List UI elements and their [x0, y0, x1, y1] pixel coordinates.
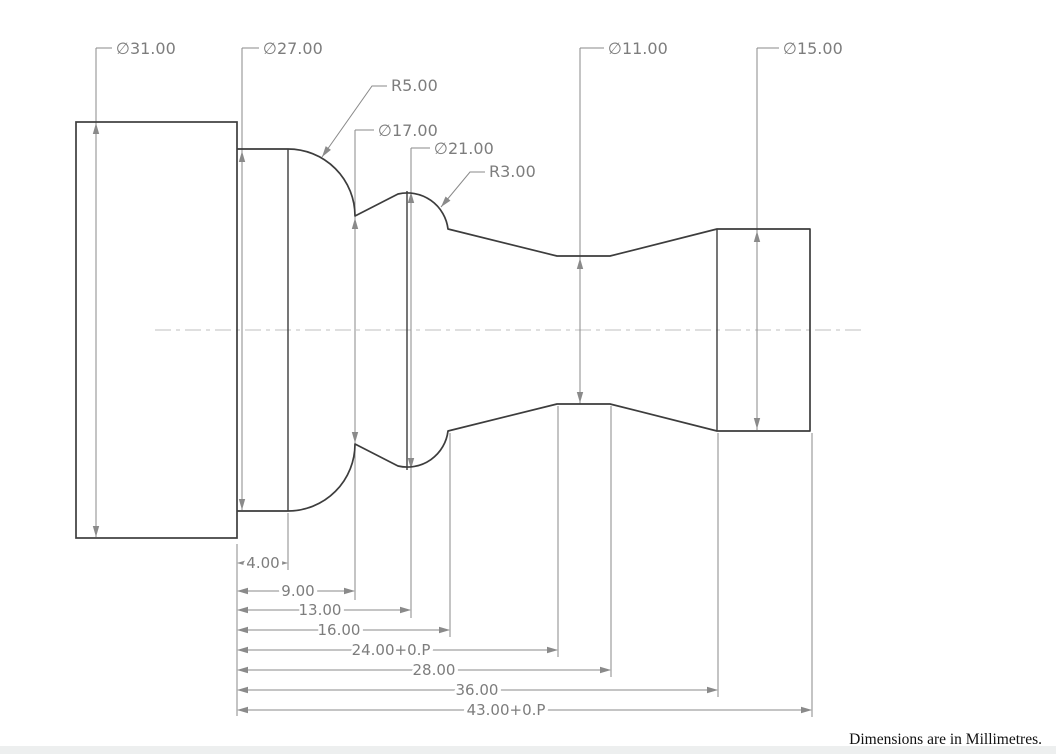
- length-arrow-right: [707, 687, 718, 693]
- diameter-arrow-up: [754, 231, 760, 242]
- diameter-label: ∅15.00: [783, 39, 843, 58]
- diameter-arrow-down: [352, 432, 358, 443]
- length-label: 36.00: [456, 681, 499, 699]
- length-label: 28.00: [413, 661, 456, 679]
- diameter-arrow-up: [352, 218, 358, 229]
- diameter-label: ∅31.00: [116, 39, 176, 58]
- length-arrow-right: [600, 667, 611, 673]
- length-arrow-right: [344, 588, 355, 594]
- radius-label: R3.00: [489, 162, 536, 181]
- diameter-arrow-up: [93, 123, 99, 134]
- diameter-label: ∅11.00: [608, 39, 668, 58]
- drawing-page: ∅31.00∅27.00∅17.00∅21.00∅11.00∅15.00R5.0…: [0, 0, 1056, 754]
- length-arrow-left: [237, 667, 248, 673]
- length-arrow-left: [237, 707, 248, 713]
- diameter-arrow-up: [577, 258, 583, 269]
- length-arrow-left: [237, 687, 248, 693]
- bottom-strip: [0, 746, 1056, 754]
- length-arrow-left: [237, 607, 248, 613]
- diameter-label: ∅21.00: [434, 139, 494, 158]
- arrowhead: [441, 196, 450, 207]
- length-arrow-right: [439, 627, 450, 633]
- diameter-arrow-down: [239, 499, 245, 510]
- radius-label: R5.00: [391, 76, 438, 95]
- length-arrow-left: [237, 647, 248, 653]
- technical-drawing: ∅31.00∅27.00∅17.00∅21.00∅11.00∅15.00R5.0…: [0, 0, 1056, 754]
- length-label: 13.00: [299, 601, 342, 619]
- length-arrow-left: [237, 627, 248, 633]
- arrowhead: [322, 146, 331, 157]
- diameter-label: ∅27.00: [263, 39, 323, 58]
- diameter-arrow-up: [239, 151, 245, 162]
- diameter-arrow-down: [577, 392, 583, 403]
- length-label: 43.00+0.P: [467, 701, 546, 719]
- diameter-label: ∅17.00: [378, 121, 438, 140]
- length-arrow-right: [400, 607, 411, 613]
- dimension-text-layer: ∅31.00∅27.00∅17.00∅21.00∅11.00∅15.00R5.0…: [116, 39, 843, 719]
- diameter-arrow-down: [754, 418, 760, 429]
- length-arrow-left: [237, 588, 248, 594]
- length-label: 24.00+0.P: [352, 641, 431, 659]
- diameter-arrow-down: [93, 526, 99, 537]
- length-arrow-right: [547, 647, 558, 653]
- length-label: 16.00: [318, 621, 361, 639]
- length-arrow-right: [801, 707, 812, 713]
- length-label: 9.00: [281, 582, 314, 600]
- length-label: 4.00: [246, 554, 279, 572]
